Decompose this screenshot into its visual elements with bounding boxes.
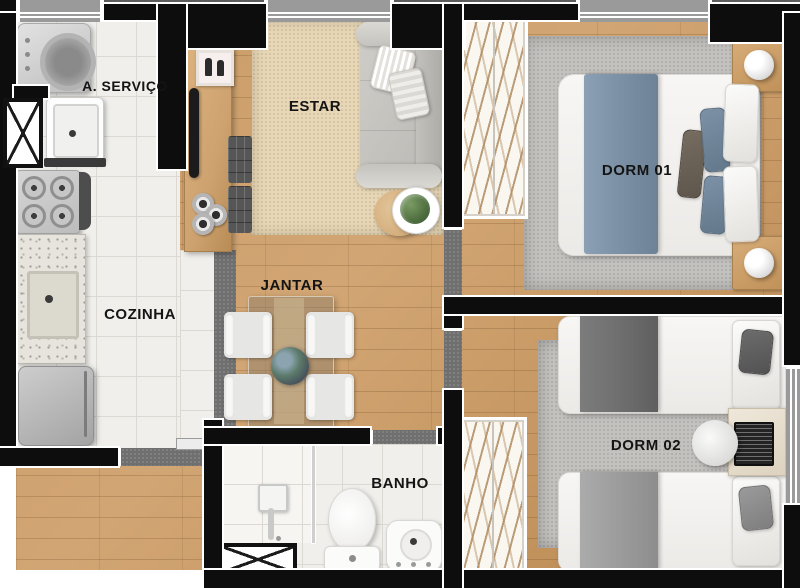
room-label-dorm2: DORM 02 <box>606 437 686 454</box>
stove-burner <box>22 204 46 228</box>
wall-center-vertical-upper <box>444 4 462 227</box>
pouf-stack <box>228 186 252 233</box>
dorm1-pillow-white <box>723 165 760 242</box>
window-dorm2 <box>786 365 800 513</box>
sink-accessory <box>396 562 401 567</box>
washer-knob <box>25 66 30 71</box>
dorm2-blanket-light <box>580 472 658 570</box>
window-servico <box>16 0 104 22</box>
laundry-counter-edge <box>44 158 106 167</box>
wall-bath-top <box>204 428 370 444</box>
washer-knob <box>25 52 30 57</box>
stove-burner <box>22 176 46 200</box>
wall-servico-divider <box>14 86 48 98</box>
desk-chair <box>692 420 738 466</box>
room-label-dorm1: DORM 01 <box>598 162 676 179</box>
dorm1-lamp <box>744 50 774 80</box>
stove <box>16 170 80 234</box>
wall-bottom <box>204 570 800 588</box>
picture-frame <box>196 50 234 86</box>
dining-chair <box>306 312 354 358</box>
kitchen-tile-floor-extension <box>180 250 214 448</box>
kitchen-counter-end <box>79 172 91 230</box>
window-glass <box>580 12 708 14</box>
wall-top-d <box>462 4 578 20</box>
entry-door-opening <box>118 448 210 466</box>
tv <box>189 88 199 178</box>
dorm2-wardrobe <box>460 420 524 576</box>
dining-chair <box>306 374 354 420</box>
kitchen-granite-counter <box>16 234 86 364</box>
floor-plan: A. SERVIÇO COZINHA ESTAR JANTAR BANHO DO… <box>0 0 800 588</box>
wall-kitchen-bottom <box>0 448 118 466</box>
dorm2-blanket-dark <box>580 316 658 412</box>
stove-burner <box>50 176 74 200</box>
sink-accessory <box>426 562 431 567</box>
toilet-bowl <box>328 488 376 552</box>
sink-basin <box>400 529 432 561</box>
flush-button <box>349 555 356 562</box>
table-centerpiece <box>271 347 309 385</box>
room-label-jantar: JANTAR <box>258 277 326 294</box>
round-stool <box>192 213 214 235</box>
laundry-tank-basin <box>53 104 99 158</box>
sink-accessory <box>411 562 416 567</box>
wall-center-vertical-lower <box>444 390 462 588</box>
dorm1-wardrobe <box>461 16 525 216</box>
dorm2-pillow-accent <box>738 328 774 375</box>
wall-top-a <box>104 4 160 20</box>
toilet-tank <box>324 546 380 572</box>
laundry-tank-drain <box>69 130 76 137</box>
dorm1-lamp <box>744 248 774 278</box>
pouf-stack <box>228 136 252 183</box>
room-label-banho: BANHO <box>368 475 432 492</box>
figure-art <box>217 60 224 76</box>
shower-drain <box>276 536 281 541</box>
shower-glass-partition <box>312 444 315 543</box>
entry-door-leaf <box>176 438 206 450</box>
room-label-cozinha: COZINHA <box>95 306 185 323</box>
plant <box>400 194 430 224</box>
wall-left <box>0 13 16 466</box>
wall-dorm-divider <box>444 297 800 314</box>
wall-right-upper <box>784 13 800 365</box>
kitchen-faucet <box>45 295 53 303</box>
laptop <box>734 422 774 466</box>
laundry-tank <box>46 97 104 163</box>
sink-faucet <box>410 538 417 545</box>
window-glass <box>268 12 390 14</box>
bathroom-sink <box>386 520 442 572</box>
shower-bar <box>268 508 274 540</box>
figure-art <box>205 58 212 76</box>
kitchen-sink <box>27 271 79 339</box>
dining-chair <box>224 312 272 358</box>
room-label-estar: ESTAR <box>283 98 347 115</box>
dorm1-pillow-white <box>723 83 760 162</box>
wall-right-lower <box>784 505 800 588</box>
window-glass <box>20 12 100 14</box>
washer-knob <box>25 38 30 43</box>
sofa-armrest <box>356 164 442 188</box>
room-label-servico: A. SERVIÇO <box>55 78 195 94</box>
wall-bath-left <box>204 420 222 588</box>
duct-shaft-left-box <box>3 98 43 168</box>
window-estar <box>264 0 394 22</box>
dorm1-door-opening <box>444 227 462 303</box>
window-dorm1 <box>576 0 712 22</box>
bathroom-door-opening <box>370 430 444 444</box>
fridge-handle <box>84 371 87 437</box>
dorm2-door-opening <box>444 328 462 396</box>
dorm2-pillow-accent <box>738 484 774 531</box>
dining-chair <box>224 374 272 420</box>
stove-burner <box>50 204 74 228</box>
fridge <box>18 366 94 446</box>
window-glass <box>790 369 792 509</box>
